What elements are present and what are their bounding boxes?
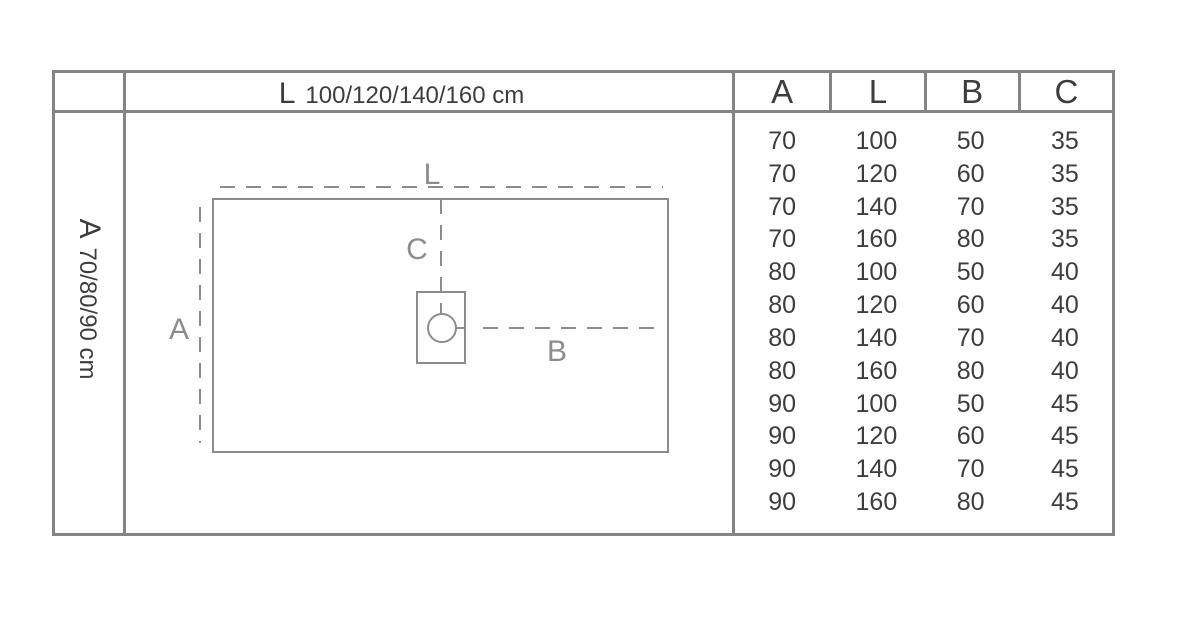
- table-cell: 35: [1018, 223, 1112, 256]
- table-cell: 80: [735, 355, 829, 388]
- diagram-length-label: L: [424, 158, 441, 191]
- table-cell: 35: [1018, 191, 1112, 224]
- table-cell: 40: [1018, 322, 1112, 355]
- table-row: 901005045: [735, 388, 1112, 421]
- table-cell: 120: [829, 158, 923, 191]
- table-cell: 90: [735, 486, 829, 519]
- table-cell: 140: [829, 191, 923, 224]
- table-cell: 40: [1018, 355, 1112, 388]
- table-cell: 80: [735, 322, 829, 355]
- table-cell: 50: [924, 388, 1018, 421]
- table-cell: 40: [1018, 256, 1112, 289]
- diagram-drain-center-label: C: [406, 233, 428, 266]
- table-cell: 90: [735, 388, 829, 421]
- table-cell: 100: [829, 388, 923, 421]
- table-cell: 120: [829, 420, 923, 453]
- table-cell: 80: [735, 289, 829, 322]
- table-cell: 45: [1018, 420, 1112, 453]
- table-cell: 140: [829, 322, 923, 355]
- length-letter: L: [279, 78, 296, 110]
- column-header-c: C: [1018, 73, 1112, 111]
- table-row: 901407045: [735, 453, 1112, 486]
- table-cell: 160: [829, 486, 923, 519]
- table-cell: 70: [924, 453, 1018, 486]
- table-cell: 90: [735, 453, 829, 486]
- table-cell: 70: [735, 158, 829, 191]
- spec-sheet-frame: L 100/120/140/160 cm ALBC A 70/80/90 cm …: [52, 70, 1115, 536]
- drain-circle: [428, 314, 456, 342]
- table-cell: 120: [829, 289, 923, 322]
- table-row: 801005040: [735, 256, 1112, 289]
- table-row: 701206035: [735, 158, 1112, 191]
- width-dimension-label: A 70/80/90 cm: [72, 218, 106, 379]
- table-cell: 60: [924, 420, 1018, 453]
- table-cell: 35: [1018, 158, 1112, 191]
- column-header-l: L: [829, 73, 923, 111]
- table-cell: 140: [829, 453, 923, 486]
- table-cell: 160: [829, 355, 923, 388]
- table-row: 801206040: [735, 289, 1112, 322]
- table-cell: 80: [735, 256, 829, 289]
- table-row: 901206045: [735, 420, 1112, 453]
- table-cell: 50: [924, 256, 1018, 289]
- corner-cell: [55, 73, 126, 113]
- table-cell: 45: [1018, 486, 1112, 519]
- table-cell: 70: [924, 322, 1018, 355]
- spec-table-body: 7010050357012060357014070357016080358010…: [732, 113, 1112, 533]
- table-row: 901608045: [735, 486, 1112, 519]
- table-cell: 60: [924, 158, 1018, 191]
- diagram-drain-offset-label: B: [547, 335, 567, 368]
- spec-table-header: ALBC: [732, 73, 1112, 113]
- table-cell: 80: [924, 223, 1018, 256]
- tray-diagram-svg: L A C B: [126, 113, 732, 533]
- table-cell: 70: [735, 125, 829, 158]
- table-cell: 40: [1018, 289, 1112, 322]
- table-cell: 50: [924, 125, 1018, 158]
- table-cell: 80: [924, 486, 1018, 519]
- table-cell: 35: [1018, 125, 1112, 158]
- table-cell: 70: [735, 223, 829, 256]
- table-cell: 90: [735, 420, 829, 453]
- tray-diagram: L A C B: [126, 113, 732, 533]
- table-cell: 70: [924, 191, 1018, 224]
- table-cell: 80: [924, 355, 1018, 388]
- table-cell: 70: [735, 191, 829, 224]
- width-letter: A: [72, 218, 106, 238]
- table-row: 701407035: [735, 191, 1112, 224]
- column-header-a: A: [735, 73, 829, 111]
- diagram-width-label: A: [169, 313, 189, 346]
- table-cell: 100: [829, 125, 923, 158]
- table-cell: 45: [1018, 388, 1112, 421]
- table-cell: 60: [924, 289, 1018, 322]
- table-cell: 100: [829, 256, 923, 289]
- table-row: 801407040: [735, 322, 1112, 355]
- table-row: 701608035: [735, 223, 1112, 256]
- width-dimension-sidebar: A 70/80/90 cm: [55, 113, 126, 533]
- table-cell: 160: [829, 223, 923, 256]
- table-row: 801608040: [735, 355, 1112, 388]
- width-values: 70/80/90 cm: [73, 247, 101, 379]
- length-values: 100/120/140/160 cm: [305, 81, 524, 111]
- column-header-b: B: [924, 73, 1018, 111]
- table-row: 701005035: [735, 125, 1112, 158]
- length-dimension-header: L 100/120/140/160 cm: [126, 73, 732, 113]
- table-cell: 45: [1018, 453, 1112, 486]
